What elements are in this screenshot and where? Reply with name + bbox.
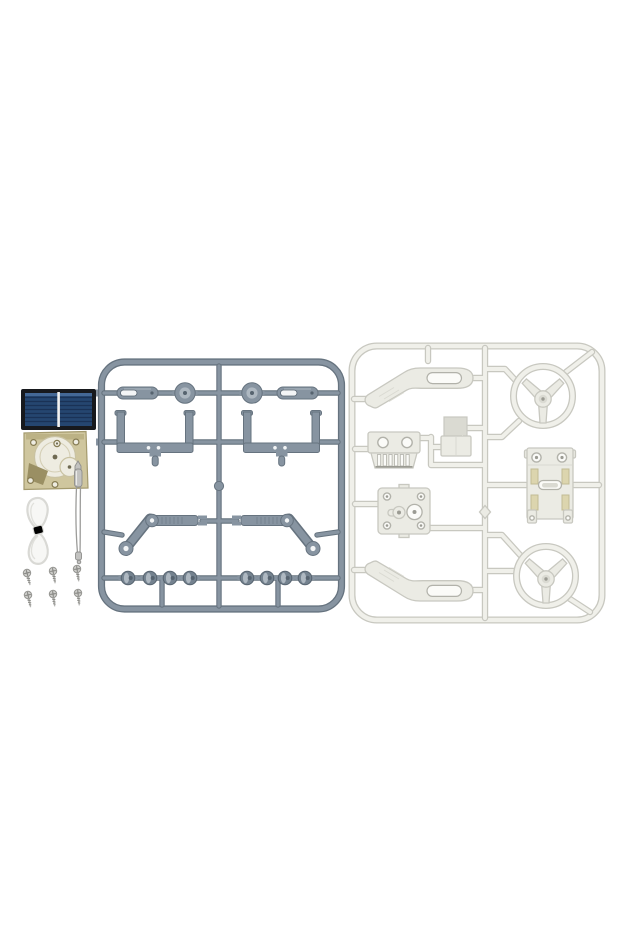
shaft-ferrule — [75, 469, 83, 487]
kit-photo-canvas — [0, 0, 621, 931]
screw-hole — [52, 482, 58, 488]
solar-cell-divider — [57, 392, 60, 427]
shaft-wire — [80, 487, 81, 553]
shaft-crimp — [76, 552, 82, 560]
plate-hole — [378, 437, 388, 447]
chassis-slot — [562, 495, 569, 510]
slotted-bar — [277, 387, 318, 399]
gearbox-plate — [378, 485, 430, 538]
gear-rack-plate — [368, 432, 420, 468]
product-photo — [0, 0, 621, 931]
chassis-slot — [531, 495, 538, 510]
plate-hole — [402, 437, 412, 447]
slotted-bar — [117, 387, 158, 399]
chassis-slot — [562, 469, 569, 484]
chassis-slot — [531, 469, 538, 484]
battery-box — [441, 417, 471, 456]
screw-hole — [31, 440, 37, 446]
tubing-knot — [33, 525, 44, 535]
sprue-node — [214, 481, 223, 490]
chassis-plate — [525, 448, 576, 523]
solar-panel — [21, 389, 96, 430]
screw-hole — [73, 439, 79, 445]
screw-hole — [28, 478, 34, 484]
